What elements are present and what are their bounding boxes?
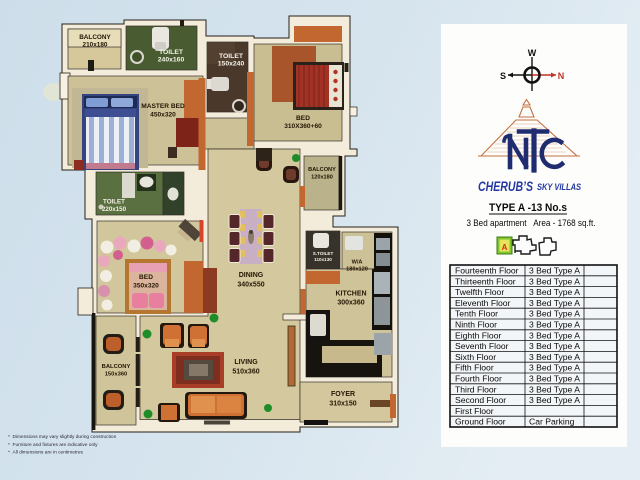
svg-text:Ninth Floor: Ninth Floor <box>455 320 497 330</box>
svg-text:3 Bed Type A: 3 Bed Type A <box>529 287 580 297</box>
svg-text:CHERUB’S: CHERUB’S <box>478 179 533 194</box>
svg-text:TOILET: TOILET <box>103 199 125 206</box>
svg-text:Fifth Floor: Fifth Floor <box>455 363 494 373</box>
svg-text:* All dimensions are in centi: * All dimensions are in centimetres <box>8 450 84 456</box>
svg-text:Eighth Floor: Eighth Floor <box>455 330 501 340</box>
svg-text:Thirteenth Floor: Thirteenth Floor <box>455 276 516 286</box>
svg-text:BED: BED <box>296 115 310 122</box>
svg-text:150x360: 150x360 <box>105 372 128 378</box>
svg-text:3 Bed Type A: 3 Bed Type A <box>529 374 580 384</box>
svg-text:180x120: 180x120 <box>346 267 368 273</box>
svg-text:3 Bed Type A: 3 Bed Type A <box>529 330 580 340</box>
svg-text:LIVING: LIVING <box>234 359 258 366</box>
svg-text:220x150: 220x150 <box>102 206 127 213</box>
svg-text:Fourteenth Floor: Fourteenth Floor <box>455 266 519 276</box>
svg-text:3 Bed Type A: 3 Bed Type A <box>529 341 580 351</box>
svg-text:Car Parking: Car Parking <box>529 417 575 427</box>
svg-text:3 Bed Type A: 3 Bed Type A <box>529 352 580 362</box>
svg-text:TYPE A -13 No.s: TYPE A -13 No.s <box>489 202 567 214</box>
svg-text:3 Bed Type A: 3 Bed Type A <box>529 384 580 394</box>
svg-text:MASTER BED: MASTER BED <box>141 103 185 110</box>
svg-text:BALCONY: BALCONY <box>79 34 111 41</box>
svg-text:KITCHEN: KITCHEN <box>335 291 366 298</box>
svg-text:510x360: 510x360 <box>232 369 259 376</box>
svg-text:Second Floor: Second Floor <box>455 395 506 405</box>
svg-text:BALCONY: BALCONY <box>308 167 336 173</box>
svg-text:3 Bed Type A: 3 Bed Type A <box>529 276 580 286</box>
svg-text:Fourth Floor: Fourth Floor <box>455 374 502 384</box>
svg-text:W/A: W/A <box>352 260 363 266</box>
svg-text:300x360: 300x360 <box>337 300 364 307</box>
svg-text:240x160: 240x160 <box>158 57 185 64</box>
svg-text:Ground Floor: Ground Floor <box>455 417 506 427</box>
svg-text:110x130: 110x130 <box>314 257 332 262</box>
svg-text:340x550: 340x550 <box>237 282 264 289</box>
svg-text:350x320: 350x320 <box>133 283 159 290</box>
svg-text:Seventh Floor: Seventh Floor <box>455 341 509 351</box>
svg-text:W: W <box>528 48 537 58</box>
svg-text:* Furniture and fixtures are: * Furniture and fixtures are indicative … <box>8 442 98 448</box>
svg-text:3 Bed Type A: 3 Bed Type A <box>529 266 580 276</box>
svg-text:S.TOILET: S.TOILET <box>313 251 334 256</box>
svg-text:120x180: 120x180 <box>311 175 333 181</box>
svg-text:S: S <box>500 71 506 81</box>
svg-text:310X360+60: 310X360+60 <box>284 123 322 130</box>
svg-text:3 Bed Type A: 3 Bed Type A <box>529 298 580 308</box>
svg-text:3 Bed Type A: 3 Bed Type A <box>529 395 580 405</box>
svg-text:3 Bed Type A: 3 Bed Type A <box>529 363 580 373</box>
svg-text:Third Floor: Third Floor <box>455 384 497 394</box>
svg-text:Twelfth Floor: Twelfth Floor <box>455 287 504 297</box>
svg-text:450x320: 450x320 <box>150 112 176 119</box>
svg-text:A: A <box>502 243 508 252</box>
svg-text:FOYER: FOYER <box>331 391 355 398</box>
svg-text:TOILET: TOILET <box>159 49 184 56</box>
svg-text:BED: BED <box>139 274 153 281</box>
svg-text:3 Bed Type A: 3 Bed Type A <box>529 320 580 330</box>
svg-text:3 Bed apartment Area - 1768: 3 Bed apartment Area - 1768 sq.ft. <box>467 218 596 228</box>
svg-text:BALCONY: BALCONY <box>102 364 131 370</box>
svg-text:* Dimensions may vary slightl: * Dimensions may vary slightly during co… <box>8 434 117 440</box>
svg-text:310x150: 310x150 <box>329 401 356 408</box>
svg-text:N: N <box>558 71 565 81</box>
svg-text:3 Bed Type A: 3 Bed Type A <box>529 309 580 319</box>
svg-text:First Floor: First Floor <box>455 406 494 416</box>
svg-text:Sixth Floor: Sixth Floor <box>455 352 496 362</box>
svg-text:DINING: DINING <box>239 272 264 279</box>
svg-text:Tenth Floor: Tenth Floor <box>455 309 498 319</box>
svg-text:SKY VILLAS: SKY VILLAS <box>537 182 582 193</box>
svg-text:TOILET: TOILET <box>219 53 244 60</box>
svg-text:Eleventh Floor: Eleventh Floor <box>455 298 511 308</box>
svg-text:150x240: 150x240 <box>218 61 245 68</box>
svg-text:210x180: 210x180 <box>83 42 108 49</box>
